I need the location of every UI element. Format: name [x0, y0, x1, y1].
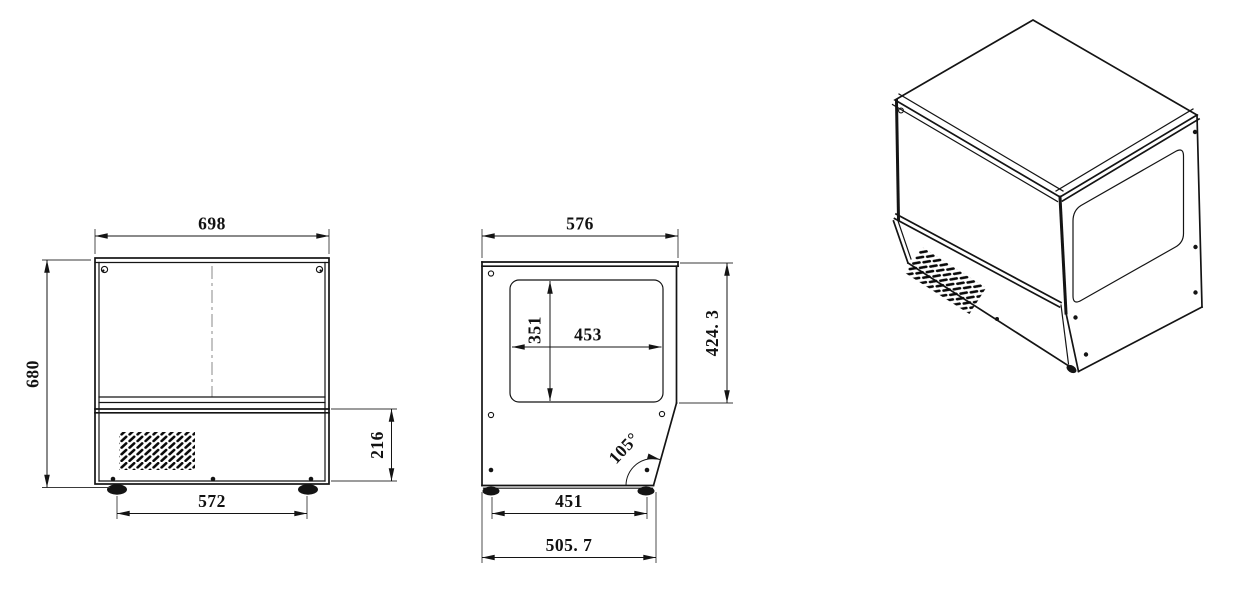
dim-label-505-7: 505. 7 — [546, 535, 593, 555]
drawing-canvas: 698 680 216 572 — [0, 0, 1237, 593]
dim-side-window-height: 351 — [525, 281, 551, 401]
iso-front-face — [893, 101, 1069, 366]
isometric-view — [893, 20, 1203, 375]
dim-label-698: 698 — [198, 214, 226, 234]
side-view: 576 351 453 424. 3 105° 451 — [482, 214, 733, 564]
dim-label-216: 216 — [367, 431, 387, 459]
front-vent-grille — [119, 432, 195, 470]
dim-front-overall-height: 680 — [23, 260, 111, 488]
iso-right-screws — [1073, 130, 1197, 357]
dim-side-angle: 105° — [604, 428, 660, 486]
iso-top-face — [895, 20, 1197, 197]
dim-side-foot-span: 451 — [492, 491, 647, 519]
dim-label-453: 453 — [574, 325, 602, 345]
side-outline — [482, 262, 678, 488]
dim-front-base-height: 216 — [331, 409, 397, 481]
dim-label-424-3: 424. 3 — [702, 310, 722, 357]
dim-front-foot-span: 572 — [117, 491, 307, 519]
dim-side-top-depth: 576 — [482, 214, 678, 259]
dim-label-351: 351 — [525, 316, 545, 344]
dim-front-top-width: 698 — [95, 214, 329, 255]
dim-label-105deg: 105° — [604, 428, 643, 467]
dim-label-451: 451 — [555, 491, 583, 511]
dim-label-680: 680 — [23, 360, 43, 388]
dim-label-576: 576 — [566, 214, 594, 234]
dim-side-upper-height: 424. 3 — [679, 263, 733, 403]
technical-drawing-page: 698 680 216 572 — [0, 0, 1237, 593]
dim-label-572: 572 — [198, 491, 226, 511]
iso-vent-grille — [905, 247, 986, 314]
front-view: 698 680 216 572 — [23, 214, 398, 520]
iso-window — [1073, 150, 1184, 302]
